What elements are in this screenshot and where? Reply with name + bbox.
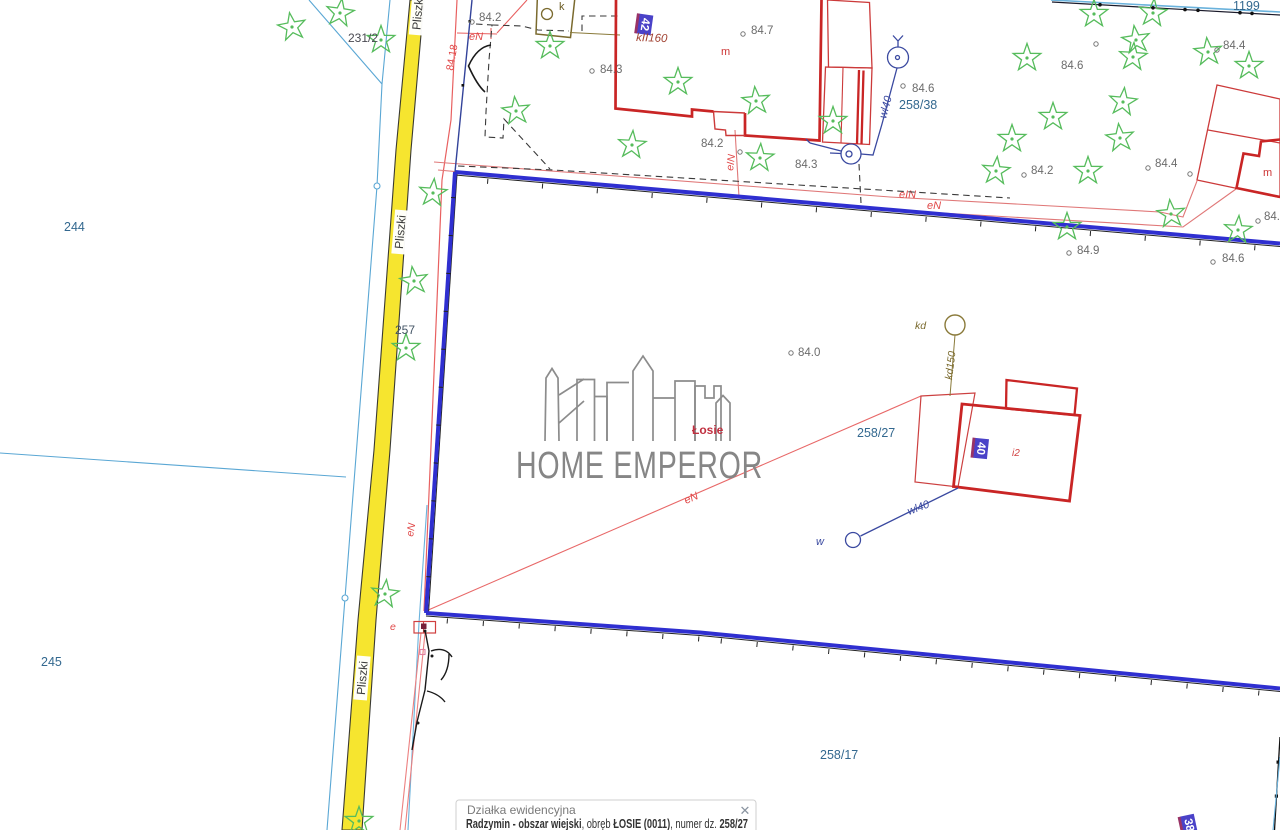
svg-text:m: m xyxy=(1263,167,1272,179)
svg-text:84.3: 84.3 xyxy=(795,159,817,171)
svg-text:1199: 1199 xyxy=(1233,0,1260,13)
svg-text:m: m xyxy=(721,46,730,58)
svg-text:eN: eN xyxy=(404,522,418,538)
svg-text:84.2: 84.2 xyxy=(1031,165,1053,177)
svg-text:38: 38 xyxy=(1181,818,1196,830)
svg-text:257: 257 xyxy=(395,323,415,337)
svg-text:84.0: 84.0 xyxy=(798,347,820,359)
svg-text:84.6: 84.6 xyxy=(1061,60,1083,72)
svg-text:Łosie: Łosie xyxy=(692,423,724,437)
svg-text:Radzymin - obszar wiejski, obr: Radzymin - obszar wiejski, obręb ŁOSIE (… xyxy=(466,816,748,830)
svg-text:eIN: eIN xyxy=(724,153,738,171)
svg-text:eN: eN xyxy=(927,200,941,212)
svg-text:84.9: 84.9 xyxy=(1077,245,1099,257)
svg-text:i2: i2 xyxy=(1012,448,1020,459)
svg-text:k: k xyxy=(559,1,565,13)
svg-text:84.2: 84.2 xyxy=(701,138,723,150)
svg-text:84.3: 84.3 xyxy=(600,64,622,76)
svg-text:245: 245 xyxy=(41,655,62,669)
svg-text:84.7: 84.7 xyxy=(751,25,773,37)
svg-text:84.4: 84.4 xyxy=(1155,158,1178,170)
svg-text:eN: eN xyxy=(469,31,483,43)
svg-text:Pliszki: Pliszki xyxy=(354,660,371,695)
svg-text:84.8: 84.8 xyxy=(1264,211,1280,223)
svg-text:Działka ewidencyjna: Działka ewidencyjna xyxy=(467,803,576,817)
svg-text:40: 40 xyxy=(974,441,987,455)
svg-text:w: w xyxy=(816,536,825,548)
svg-text:84.6: 84.6 xyxy=(1222,253,1244,265)
svg-text:244: 244 xyxy=(64,220,85,234)
svg-text:258/38: 258/38 xyxy=(899,98,937,112)
svg-text:kII160: kII160 xyxy=(636,32,668,45)
svg-text:258/27: 258/27 xyxy=(857,426,895,440)
svg-text:84.6: 84.6 xyxy=(912,83,934,95)
svg-text:84.4: 84.4 xyxy=(1223,40,1246,52)
svg-text:Pliszki: Pliszki xyxy=(392,214,409,249)
svg-text:kd: kd xyxy=(915,320,927,332)
svg-text:84.2: 84.2 xyxy=(479,12,501,24)
svg-text:HOME EMPEROR: HOME EMPEROR xyxy=(516,445,763,487)
svg-text:231/2: 231/2 xyxy=(348,31,378,45)
svg-text:42: 42 xyxy=(638,17,652,31)
svg-text:258/17: 258/17 xyxy=(820,748,858,762)
svg-text:e: e xyxy=(390,621,396,633)
